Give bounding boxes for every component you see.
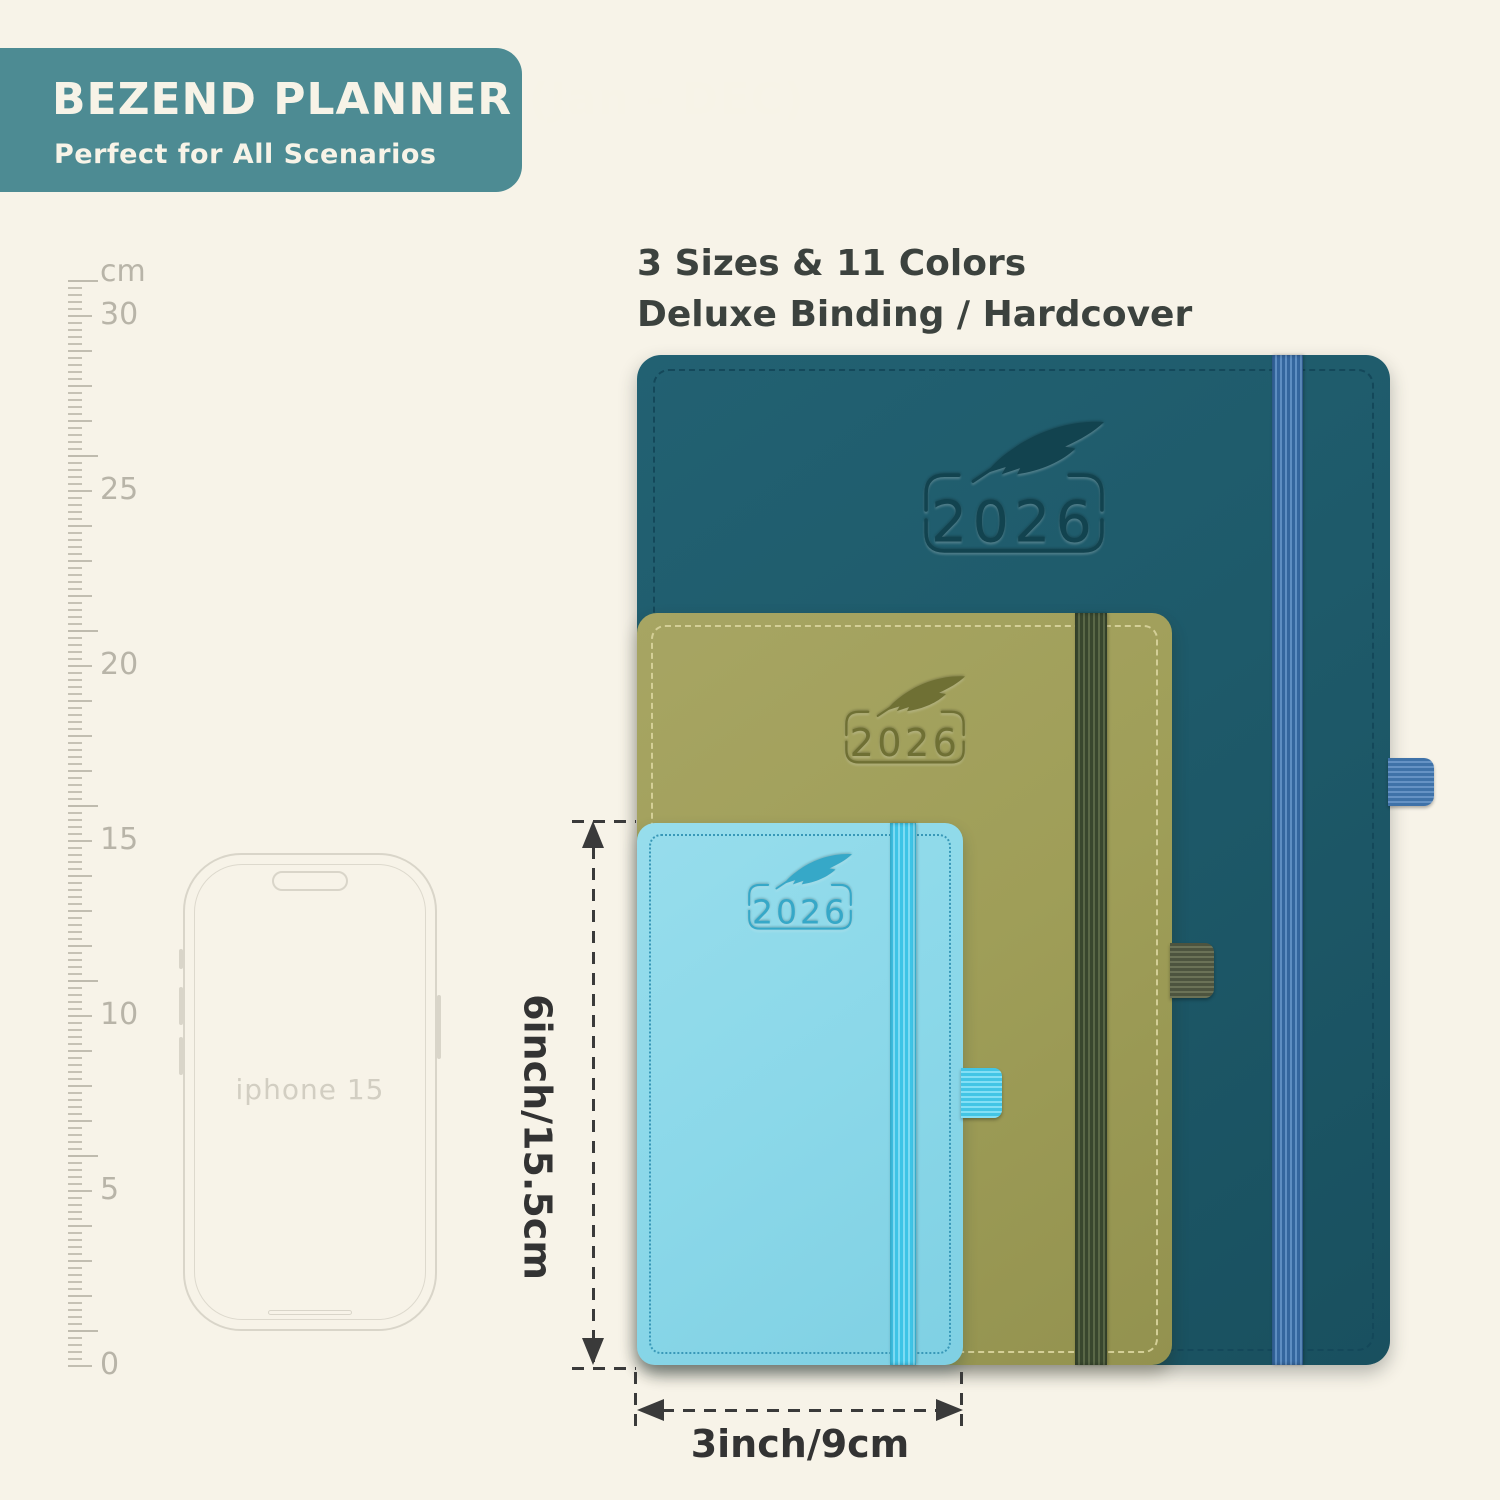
width-dim-line: [662, 1409, 940, 1412]
ruler-mark-5: 5: [100, 1173, 119, 1207]
ruler-mark-0: 0: [100, 1348, 119, 1382]
height-dim-line: [592, 826, 595, 1362]
width-dim-arrow-left: [637, 1399, 664, 1421]
cm-ruler: cm 30 25 20 15 10 5 0: [66, 265, 196, 1395]
planner-logo: 2026: [901, 420, 1126, 563]
embossed-year: 2026: [849, 722, 960, 766]
height-dim-bottom-tick: [572, 1367, 636, 1370]
ruler-5cm-ticks: [68, 280, 98, 1370]
product-title: BEZEND PLANNER (Jan - DEC): [52, 74, 522, 125]
width-dim-arrow-right: [936, 1399, 963, 1421]
ruler-unit-label: cm: [100, 255, 146, 289]
title-banner: BEZEND PLANNER (Jan - DEC) Perfect for A…: [0, 48, 522, 192]
iphone-outline: iphone 15: [183, 853, 437, 1331]
width-dim-label: 3inch/9cm: [650, 1422, 950, 1466]
pen-loop: [1388, 758, 1434, 806]
phone-volume-up-button: [179, 987, 183, 1025]
feather-icon: [986, 422, 1104, 474]
embossed-year: 2026: [752, 892, 848, 931]
planner-small-blue: 2026: [637, 823, 963, 1365]
ruler-mark-25: 25: [100, 473, 138, 507]
ruler-mark-20: 20: [100, 648, 138, 682]
height-dim-arrow-down: [582, 1338, 604, 1365]
dynamic-island: [272, 871, 348, 891]
phone-power-button: [437, 995, 441, 1059]
height-dim-label: 6inch/15.5cm: [516, 965, 560, 1310]
planner-logo: 2026: [830, 675, 980, 770]
embossed-year: 2026: [930, 489, 1096, 556]
elastic-band: [1075, 613, 1107, 1365]
feather-icon: [784, 854, 852, 884]
phone-label: iphone 15: [185, 1073, 435, 1106]
feature-text: 3 Sizes & 11 Colors Deluxe Binding / Har…: [637, 238, 1192, 340]
banner-subtitle: Perfect for All Scenarios: [54, 139, 522, 170]
ruler-mark-30: 30: [100, 298, 138, 332]
feather-icon: [886, 676, 964, 711]
ruler-mark-15: 15: [100, 823, 138, 857]
phone-volume-down-button: [179, 1037, 183, 1075]
planner-logo: 2026: [735, 853, 865, 936]
feature-line-sizes-colors: 3 Sizes & 11 Colors: [637, 238, 1192, 289]
phone-mute-switch: [179, 949, 183, 969]
product-infographic: BEZEND PLANNER (Jan - DEC) Perfect for A…: [0, 0, 1500, 1500]
ruler-mark-10: 10: [100, 998, 138, 1032]
elastic-band: [890, 823, 916, 1365]
height-dim-arrow-up: [582, 821, 604, 848]
elastic-band: [1272, 355, 1303, 1365]
pen-loop: [1170, 943, 1214, 998]
phone-bottom-bar: [268, 1310, 352, 1315]
pen-loop: [961, 1068, 1002, 1118]
feature-line-binding: Deluxe Binding / Hardcover: [637, 289, 1192, 340]
